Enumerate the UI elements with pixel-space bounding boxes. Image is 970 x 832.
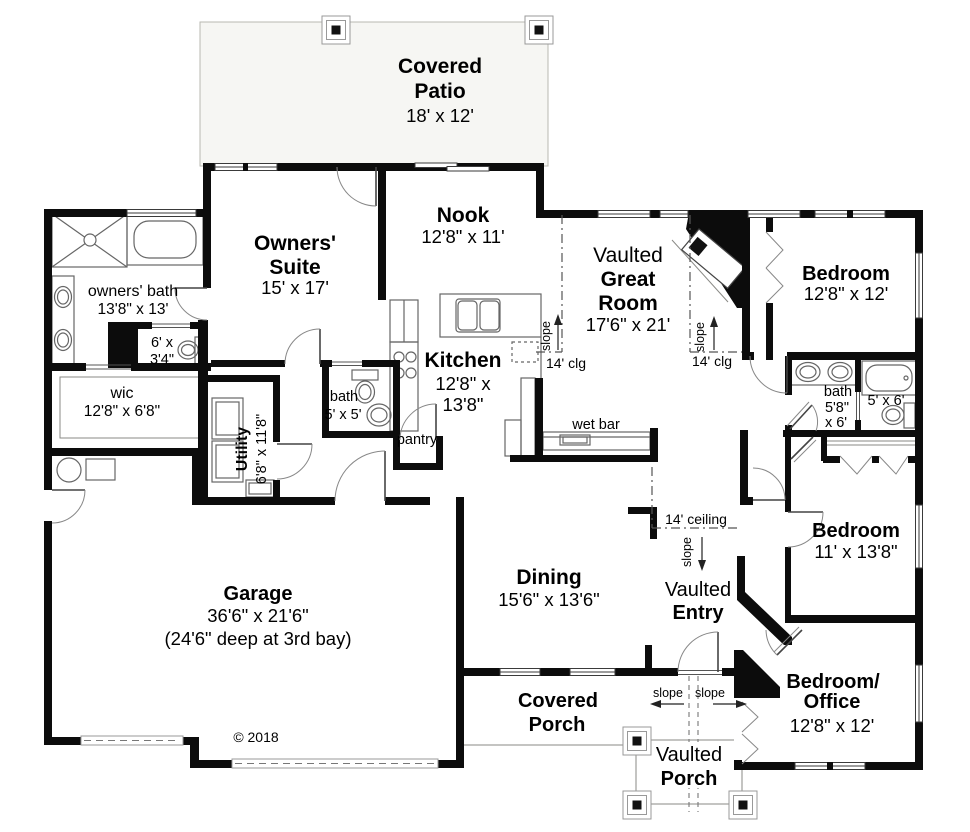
wic-dims: 12'8" x 6'8" [84, 403, 160, 420]
covered-porch-label2: Porch [529, 714, 586, 736]
covered-patio-label2: Patio [414, 80, 465, 103]
post [322, 16, 350, 44]
clg-14-right: 14' clg [692, 353, 732, 369]
dining-dims: 15'6" x 13'6" [498, 589, 599, 610]
hall-bath-label: bath [824, 384, 852, 400]
vaulted-porch-label2: Porch [661, 768, 718, 790]
hall-bath-dims: 5'8" [825, 400, 849, 416]
dining-label: Dining [516, 566, 581, 589]
post [525, 16, 553, 44]
entry-slope-label: slope [680, 537, 694, 567]
ceiling-14-label: 14' ceiling [665, 511, 727, 527]
wet-bar-counter [543, 432, 650, 450]
porch-slope-left: slope [653, 686, 683, 700]
hall-bath-dims2: x 6' [825, 415, 847, 431]
garage-equipment [57, 458, 115, 482]
floor-plan-drawing: Covered Patio 18' x 12' Owners' Suite 15… [0, 0, 970, 832]
wic-label: wic [109, 385, 133, 402]
post [729, 791, 757, 819]
covered-patio-label: Covered [398, 55, 482, 78]
owners-bath-door [175, 288, 207, 320]
utility-door [277, 444, 312, 479]
utility-label: Utility [234, 427, 251, 472]
garage-side-door [52, 490, 85, 523]
great-room-dims: 17'6" x 21' [586, 314, 671, 335]
bedroom-upper-dims: 12'8" x 12' [804, 283, 889, 304]
water-heater [57, 458, 81, 482]
toilet-tank [352, 370, 378, 380]
hall-bath-door [787, 402, 818, 431]
fireplace [672, 218, 747, 308]
bedroom-office-label2: Office [804, 691, 861, 713]
kitchen-dims2: 13'8" [443, 394, 484, 415]
floor-plan-page: Covered Patio 18' x 12' Owners' Suite 15… [0, 0, 970, 832]
porch-slope-right: slope [695, 686, 725, 700]
covered-patio-dims: 18' x 12' [406, 105, 474, 126]
garage-entry-door [335, 451, 385, 501]
toilet-room-dims2: 3'4" [150, 352, 174, 368]
vaulted-porch-label: Vaulted [656, 744, 722, 766]
suite-hall-door [285, 329, 320, 364]
great-room-label2: Great [601, 268, 656, 291]
hall-bath-wc-dims: 5' x 6' [868, 393, 905, 409]
owners-bath-label: owners' bath [88, 283, 178, 300]
linen-door [791, 437, 816, 462]
bedroom-middle-label: Bedroom [812, 520, 900, 542]
owners-suite-dims: 15' x 17' [261, 277, 329, 298]
garage-dims: 36'6" x 21'6" [207, 605, 308, 626]
covered-porch-label: Covered [518, 690, 598, 712]
bar-counter [521, 378, 535, 456]
covered-patio-slab [200, 22, 548, 166]
shower [52, 214, 127, 267]
dishwasher [512, 342, 538, 362]
hall-entry-door [753, 468, 785, 500]
wet-bar-label: wet bar [571, 417, 620, 433]
bedroom-upper-door [750, 356, 787, 393]
vaulted-entry-label2: Entry [672, 602, 724, 624]
nook-dims: 12'8" x 11' [421, 226, 504, 247]
double-vanity [52, 276, 74, 364]
suite-patio-door [337, 167, 376, 206]
bedroom-office-label: Bedroom/ [786, 671, 880, 693]
owners-bath-dims: 13'8" x 13' [98, 301, 169, 318]
garage-note: (24'6" deep at 3rd bay) [165, 628, 352, 649]
closet-bifold-upper [766, 232, 783, 303]
kitchen-sink [456, 299, 500, 332]
nook-label: Nook [437, 204, 490, 227]
owners-suite-label: Owners' [254, 232, 336, 255]
post [623, 791, 651, 819]
bedroom-office-dims: 12'8" x 12' [790, 715, 875, 736]
copyright: © 2018 [233, 729, 279, 745]
toilet-room-dims: 6' x [151, 335, 174, 351]
closet-bifold-office [742, 702, 758, 764]
furnace [86, 459, 115, 480]
great-room-label: Vaulted [593, 244, 663, 267]
post [623, 727, 651, 755]
clg-14-left: 14' clg [546, 355, 586, 371]
kitchen-dims: 12'8" x [435, 373, 491, 394]
front-entry-door [678, 632, 718, 672]
utility-dims: 6'8" x 11'8" [254, 414, 270, 484]
owners-suite-label2: Suite [269, 256, 320, 279]
bedroom-middle-dims: 11' x 13'8" [814, 541, 897, 562]
great-room-slope-right: slope [693, 322, 707, 352]
great-room-slope-left: slope [539, 321, 553, 351]
bath-label: bath [330, 389, 358, 405]
vaulted-entry-label: Vaulted [665, 579, 731, 601]
bath-dims: 5' x 5' [325, 407, 362, 423]
garage-label: Garage [224, 583, 293, 605]
bedroom-upper-label: Bedroom [802, 263, 890, 285]
kitchen-label: Kitchen [424, 349, 501, 372]
great-room-label3: Room [598, 292, 658, 315]
pantry-label: pantry [397, 432, 438, 448]
bathtub [127, 214, 203, 265]
toilet-tank [904, 403, 915, 428]
